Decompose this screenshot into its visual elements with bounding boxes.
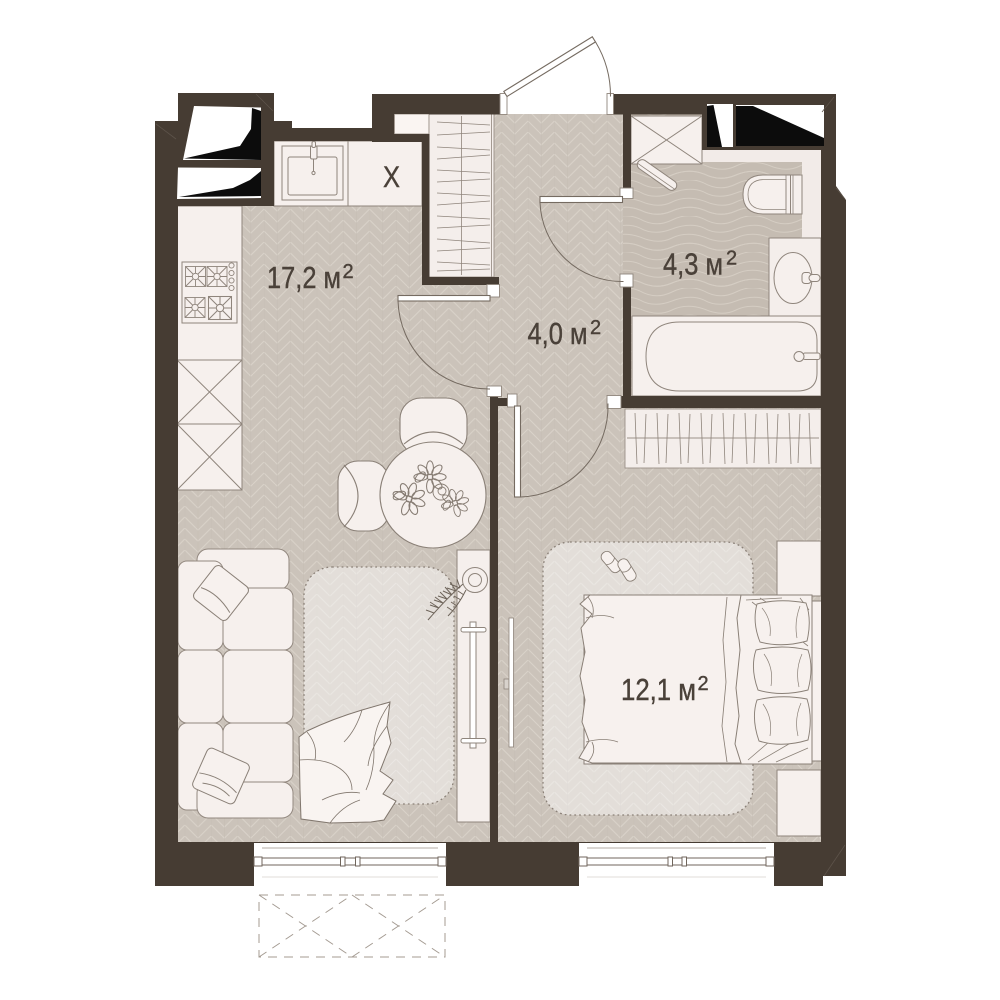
- svg-text:2: 2: [343, 261, 354, 283]
- svg-text:2: 2: [590, 317, 601, 339]
- svg-text:17,2 м: 17,2 м: [267, 260, 341, 295]
- svg-text:4,3 м: 4,3 м: [663, 247, 723, 282]
- svg-text:4,0 м: 4,0 м: [528, 316, 588, 351]
- svg-text:2: 2: [698, 673, 709, 695]
- svg-text:2: 2: [726, 248, 737, 270]
- svg-text:12,1 м: 12,1 м: [621, 672, 696, 707]
- svg-text:Х: Х: [383, 161, 400, 194]
